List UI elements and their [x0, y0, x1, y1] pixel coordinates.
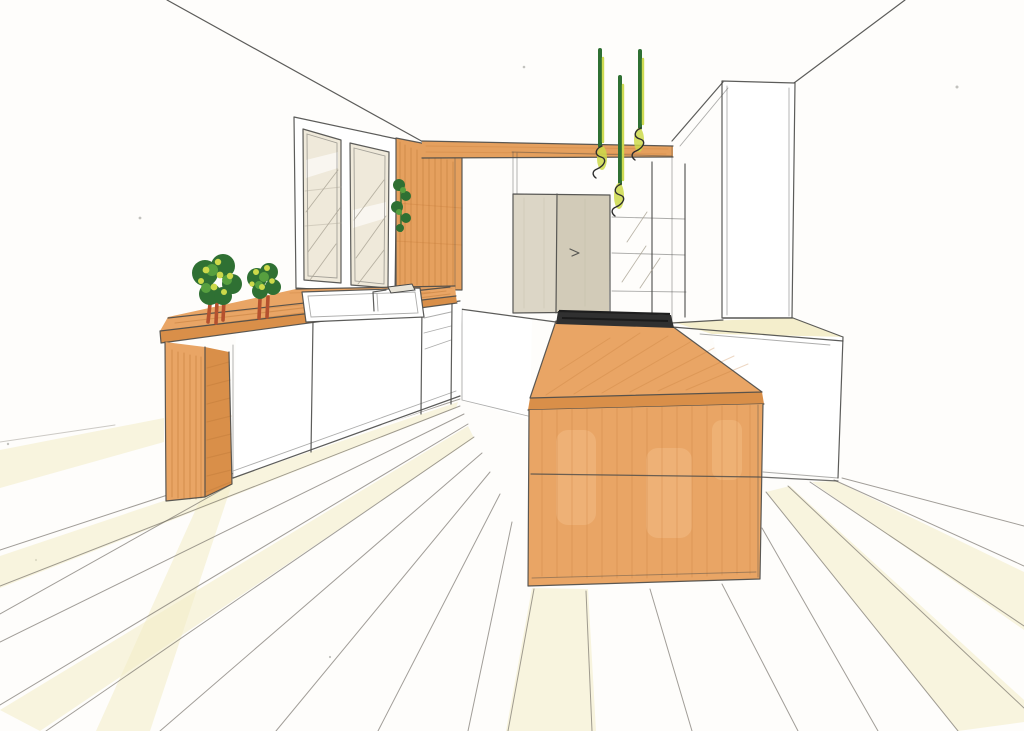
sink — [302, 288, 424, 322]
kitchen-sketch — [0, 0, 1024, 731]
pendant-cord-3 — [632, 51, 644, 160]
tall-cabinet — [672, 81, 795, 318]
pendant-cord-1 — [593, 50, 607, 178]
bar-leg — [165, 342, 232, 501]
wood-wall-panel — [391, 138, 462, 290]
floor-planks — [0, 399, 1024, 731]
pendant-lights — [593, 50, 644, 216]
refrigerator — [513, 194, 610, 313]
window — [294, 117, 397, 301]
sketch-page: Hand-drawn kitchen interior perspective … — [0, 0, 1024, 731]
